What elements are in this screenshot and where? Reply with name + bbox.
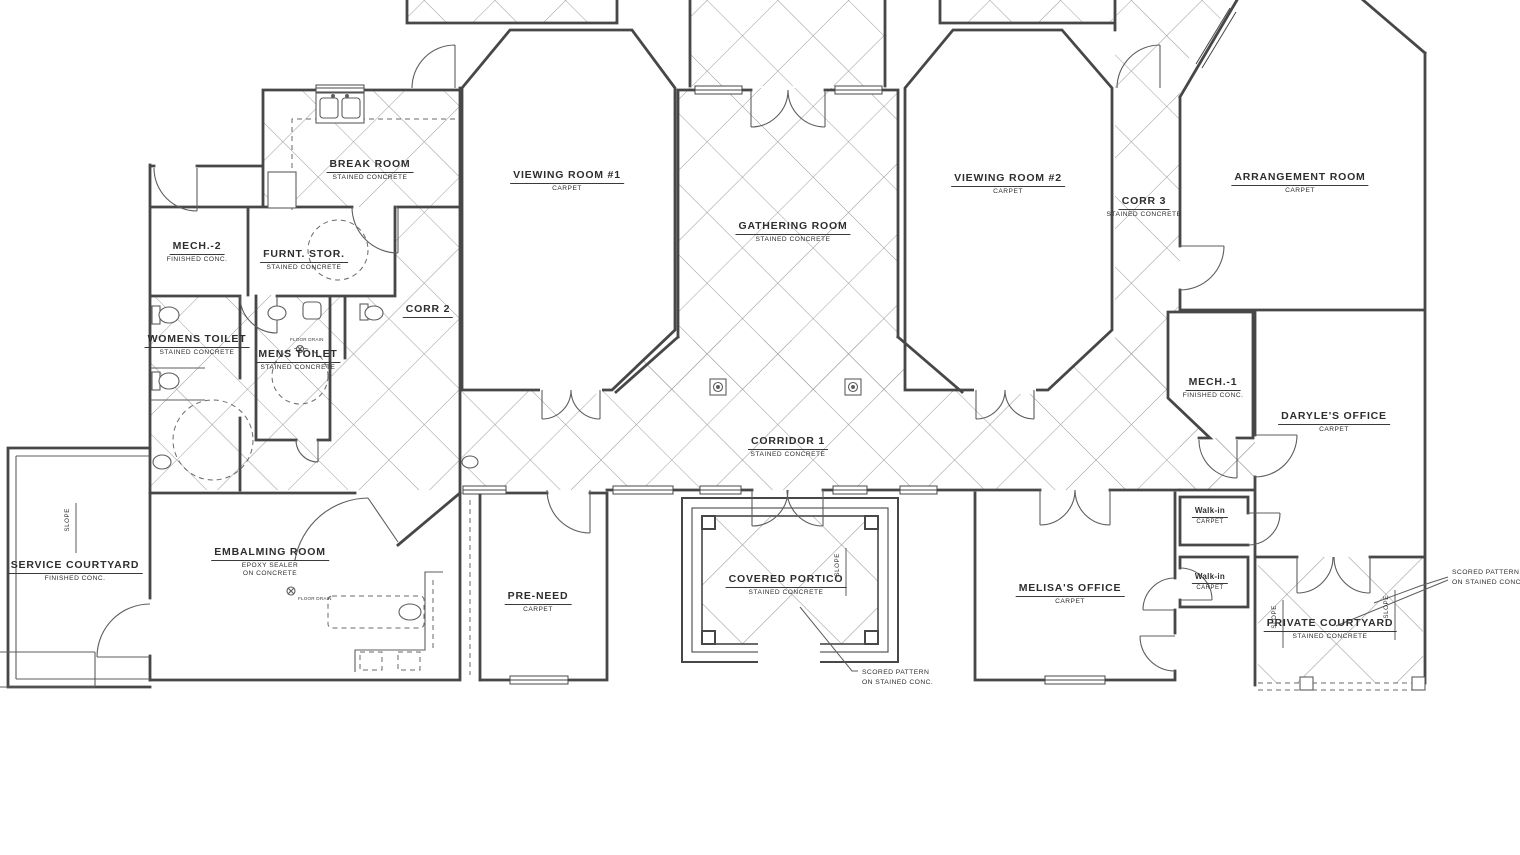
viewing-room-1-floor (462, 30, 675, 390)
room-label-walk-in-1: Walk-in CARPET (1192, 506, 1228, 527)
room-label-viewing-room-2: VIEWING ROOM #2 CARPET (951, 172, 1065, 196)
arrangement-room-floor (1180, 0, 1425, 310)
room-label-corr-3: CORR 3 STAINED CONCRETE (1107, 195, 1182, 219)
room-label-arrangement-room: ARRANGEMENT ROOM CARPET (1231, 171, 1368, 195)
room-label-daryles-office: DARYLE'S OFFICE CARPET (1278, 410, 1390, 434)
room-label-mens-toilet: MENS TOILET STAINED CONCRETE (255, 348, 340, 372)
pre-need-floor (480, 493, 607, 680)
room-label-melisas-office: MELISA'S OFFICE CARPET (1016, 582, 1125, 606)
urinal (303, 302, 321, 319)
room-label-pre-need: PRE-NEED CARPET (505, 590, 572, 614)
slope-label-portico: SLOPE (834, 553, 841, 577)
room-label-walk-in-2: Walk-in CARPET (1192, 572, 1228, 593)
room-label-mech-2: MECH.-2 FINISHED CONC. (167, 240, 228, 264)
viewing-room-2-floor (905, 30, 1112, 390)
scored-pattern-note-right: SCORED PATTERN ON STAINED CONC. (1452, 568, 1520, 588)
floor-plan-canvas: BREAK ROOM STAINED CONCRETE VIEWING ROOM… (0, 0, 1520, 855)
slope-label-private-courtyard-right: SLOPE (1383, 595, 1390, 619)
room-label-corr-2: CORR 2 (403, 303, 453, 318)
embalming-table-sink (399, 604, 421, 620)
room-label-covered-portico: COVERED PORTICO STAINED CONCRETE (726, 573, 847, 597)
slope-label-service-courtyard: SLOPE (64, 508, 71, 532)
room-label-viewing-room-1: VIEWING ROOM #1 CARPET (510, 169, 624, 193)
mop-sink (462, 456, 478, 468)
floor-drain-label-embalming: FLOOR DRAIN (298, 596, 332, 601)
portico-steps-opening (758, 640, 820, 666)
break-room-cabinet (268, 172, 296, 208)
gate-post (1412, 677, 1425, 690)
gate-post (1300, 677, 1313, 690)
mens-lavatory (268, 306, 286, 320)
floor-drain-label-mens-toilet: FLOOR DRAIN (290, 337, 324, 342)
embalming-counter (355, 572, 443, 672)
room-label-furnt-stor: FURNT. STOR. STAINED CONCRETE (260, 248, 348, 272)
room-label-gathering-room: GATHERING ROOM STAINED CONCRETE (735, 220, 850, 244)
room-label-mech-1: MECH.-1 FINISHED CONC. (1183, 376, 1244, 400)
toilet-bowl (159, 307, 179, 323)
slope-label-private-courtyard-left: SLOPE (1271, 605, 1278, 629)
room-label-break-room: BREAK ROOM STAINED CONCRETE (327, 158, 414, 182)
room-label-service-courtyard: SERVICE COURTYARD FINISHED CONC. (8, 559, 143, 583)
lavatory-sink (153, 455, 171, 469)
scored-pattern-note-bottom: SCORED PATTERN ON STAINED CONC. (862, 668, 933, 688)
room-label-corridor-1: CORRIDOR 1 STAINED CONCRETE (748, 435, 828, 459)
room-label-embalming-room: EMBALMING ROOM EPOXY SEALER ON CONCRETE (211, 546, 329, 579)
room-label-private-courtyard: PRIVATE COURTYARD STAINED CONCRETE (1264, 617, 1397, 641)
room-label-womens-toilet: WOMENS TOILET STAINED CONCRETE (145, 333, 250, 357)
